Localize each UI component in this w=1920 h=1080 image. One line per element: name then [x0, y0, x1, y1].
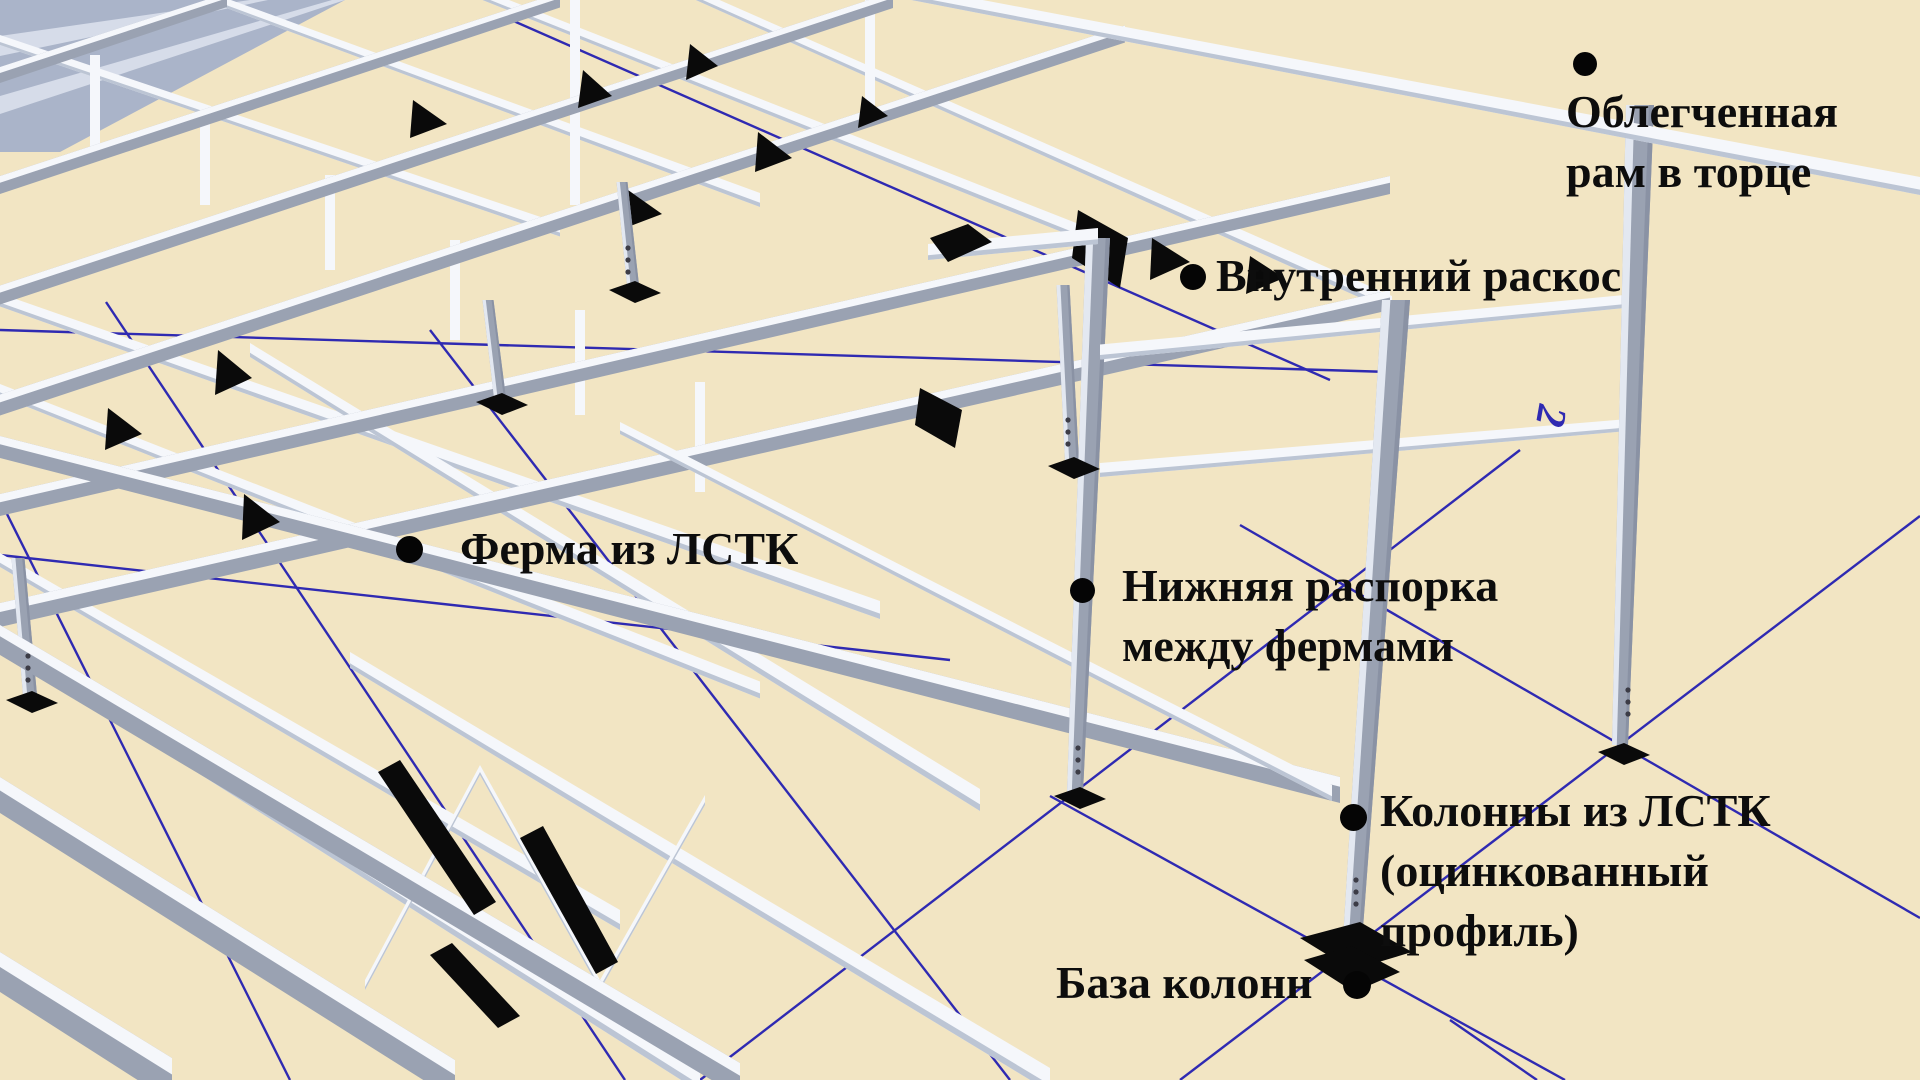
callout-dot-columns — [1340, 804, 1367, 831]
label-columns-line2: (оцинкованный — [1380, 841, 1771, 901]
callout-dot-truss — [396, 536, 423, 563]
callout-dot-column-base — [1343, 971, 1371, 999]
label-end-frame: Облегченная рам в торце — [1566, 82, 1838, 202]
label-columns-line1: Колонны из ЛСТК — [1380, 781, 1771, 841]
callout-dot-inner-brace — [1180, 264, 1206, 290]
label-bottom-strut-line1: Нижняя распорка — [1122, 556, 1498, 616]
label-column-base-line1: База колонн — [1056, 953, 1313, 1013]
label-columns: Колонны из ЛСТК (оцинкованный профиль) — [1380, 781, 1771, 961]
label-column-base: База колонн — [1056, 953, 1313, 1013]
label-end-frame-line2: рам в торце — [1566, 142, 1838, 202]
lstk-frame-annotated-render: Облегченная рам в торце Внутренний раско… — [0, 0, 1920, 1080]
label-bottom-strut: Нижняя распорка между фермами — [1122, 556, 1498, 676]
label-inner-brace-line1: Внутренний раскос — [1216, 246, 1621, 306]
callout-dot-bottom-strut — [1070, 578, 1095, 603]
label-end-frame-line1: Облегченная — [1566, 82, 1838, 142]
label-inner-brace: Внутренний раскос — [1216, 246, 1621, 306]
label-truss: Ферма из ЛСТК — [460, 519, 798, 579]
label-truss-line1: Ферма из ЛСТК — [460, 519, 798, 579]
label-bottom-strut-line2: между фермами — [1122, 616, 1498, 676]
callout-dot-end-frame — [1573, 52, 1597, 76]
label-columns-line3: профиль) — [1380, 901, 1771, 961]
